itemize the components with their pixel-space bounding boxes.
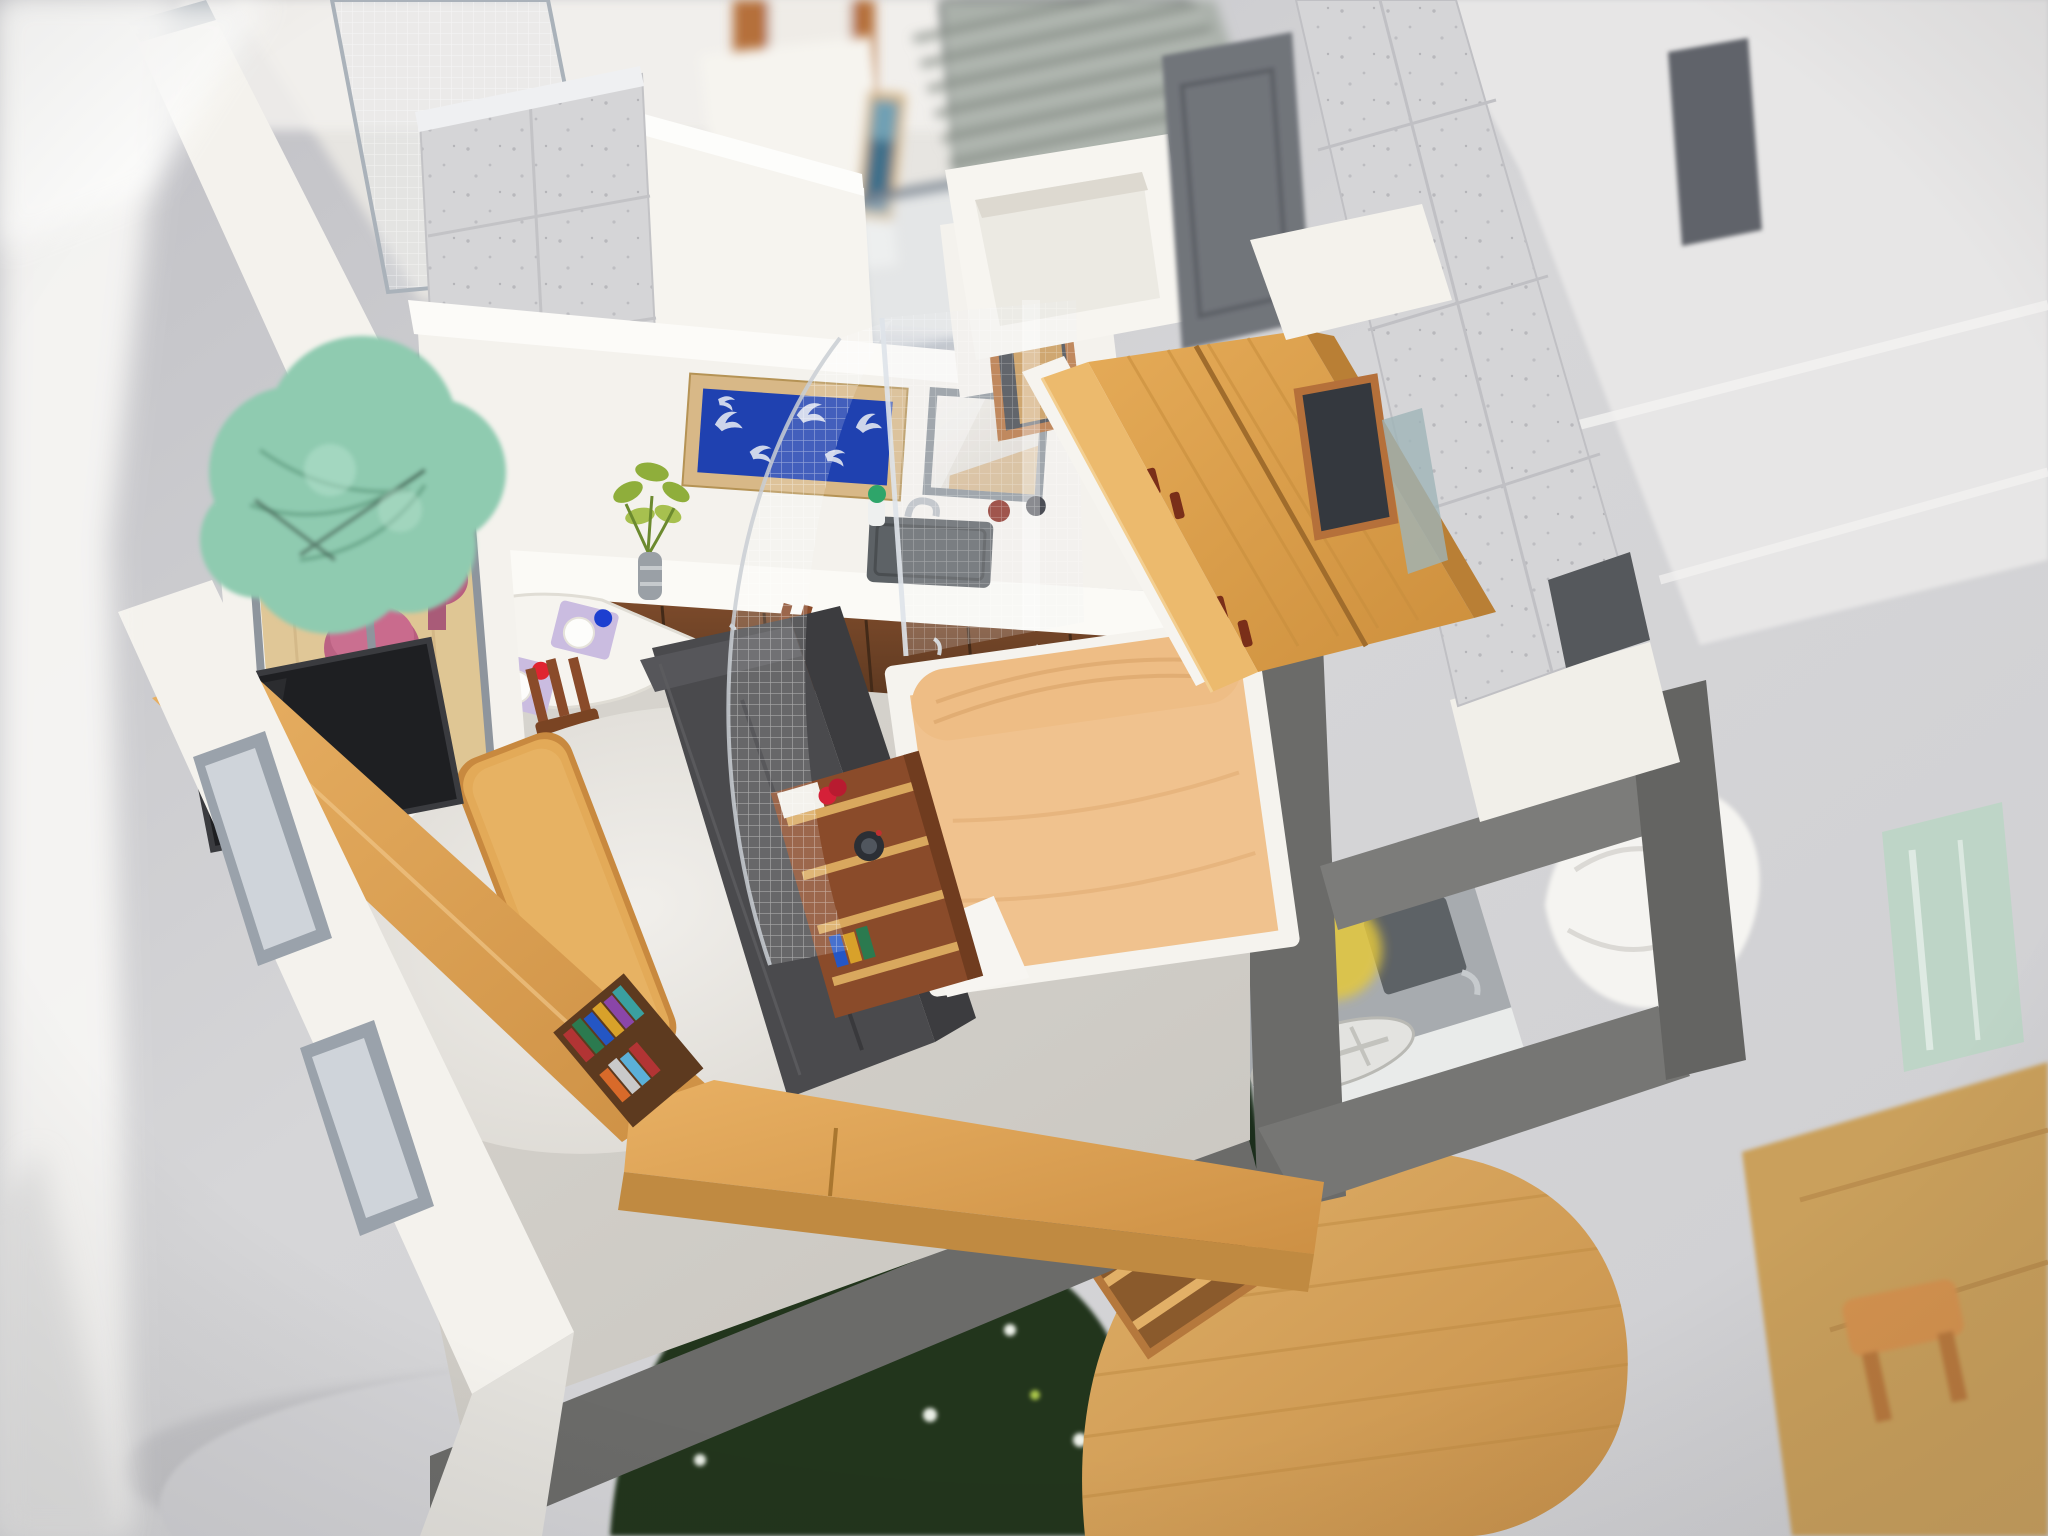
model-photo-canvas: [0, 0, 2048, 1536]
model-photograph: [0, 0, 2048, 1536]
vignette: [0, 0, 2048, 1536]
